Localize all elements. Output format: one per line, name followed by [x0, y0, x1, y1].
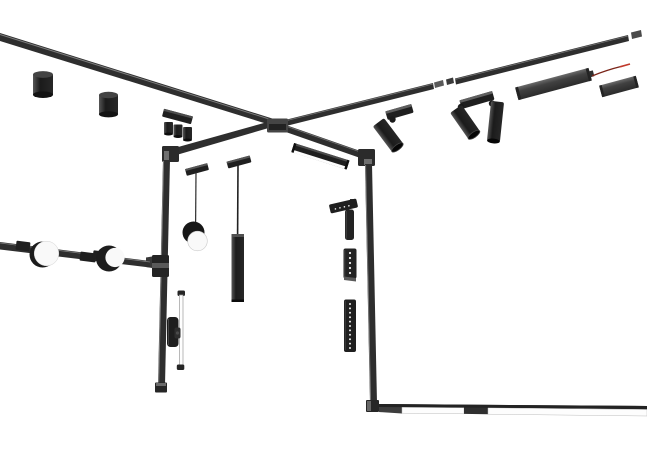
track-end-connector-accent [156, 383, 166, 386]
tee-connector-accent [152, 263, 169, 268]
led-dot [349, 252, 351, 254]
tube-body [232, 234, 245, 302]
led-dot [349, 316, 351, 318]
led-dot [349, 347, 351, 349]
track-clip [16, 241, 31, 252]
tube-end-cap [177, 365, 185, 371]
led-dot [349, 338, 351, 340]
led-dot [349, 321, 351, 323]
spot-knuckle [389, 116, 395, 122]
led-dot [349, 303, 351, 305]
cylinder-bottom [99, 111, 118, 117]
disk-face [34, 241, 59, 266]
led-dot [349, 312, 351, 314]
surface-cylinder-downlight [99, 92, 118, 118]
spot-head [183, 127, 192, 142]
clip-body [16, 241, 31, 252]
spot-head-face [174, 135, 183, 138]
cylinder-top [99, 92, 118, 98]
led-dot [349, 262, 351, 264]
led-dot [349, 325, 351, 327]
cylinder-top [33, 71, 53, 78]
render-canvas [0, 0, 647, 456]
led-dot [349, 329, 351, 331]
led-dot [349, 334, 351, 336]
spot-head [174, 125, 183, 139]
led-dot [349, 257, 351, 259]
tube-bottom-cap [232, 300, 245, 303]
elbow-connector-accent [164, 151, 169, 160]
grid-dot-module [344, 249, 357, 282]
cross-connector-slot [269, 124, 286, 130]
cylinder-bottom [33, 91, 53, 98]
spot-head-face [164, 133, 173, 136]
track-lighting-render [0, 0, 647, 456]
sphere-glass [188, 231, 208, 251]
led-dot [349, 272, 351, 274]
spot-head-face [183, 139, 192, 142]
spot-head [164, 122, 173, 136]
led-dot [349, 267, 351, 269]
led-dot [349, 343, 351, 345]
disk-face [105, 248, 124, 267]
track-adapter-block [167, 317, 181, 347]
surface-cylinder-downlight [33, 71, 53, 98]
led-dot [349, 307, 351, 309]
linear-grid-module [344, 300, 356, 353]
spot-head-body [164, 122, 173, 134]
adapter-knob-face [176, 331, 179, 334]
spot-head-body [183, 127, 192, 140]
spot-head-body [174, 125, 183, 137]
tube-top-cap [232, 234, 245, 237]
strip-diffuser [402, 407, 464, 414]
elbow-connector-accent [367, 401, 371, 411]
